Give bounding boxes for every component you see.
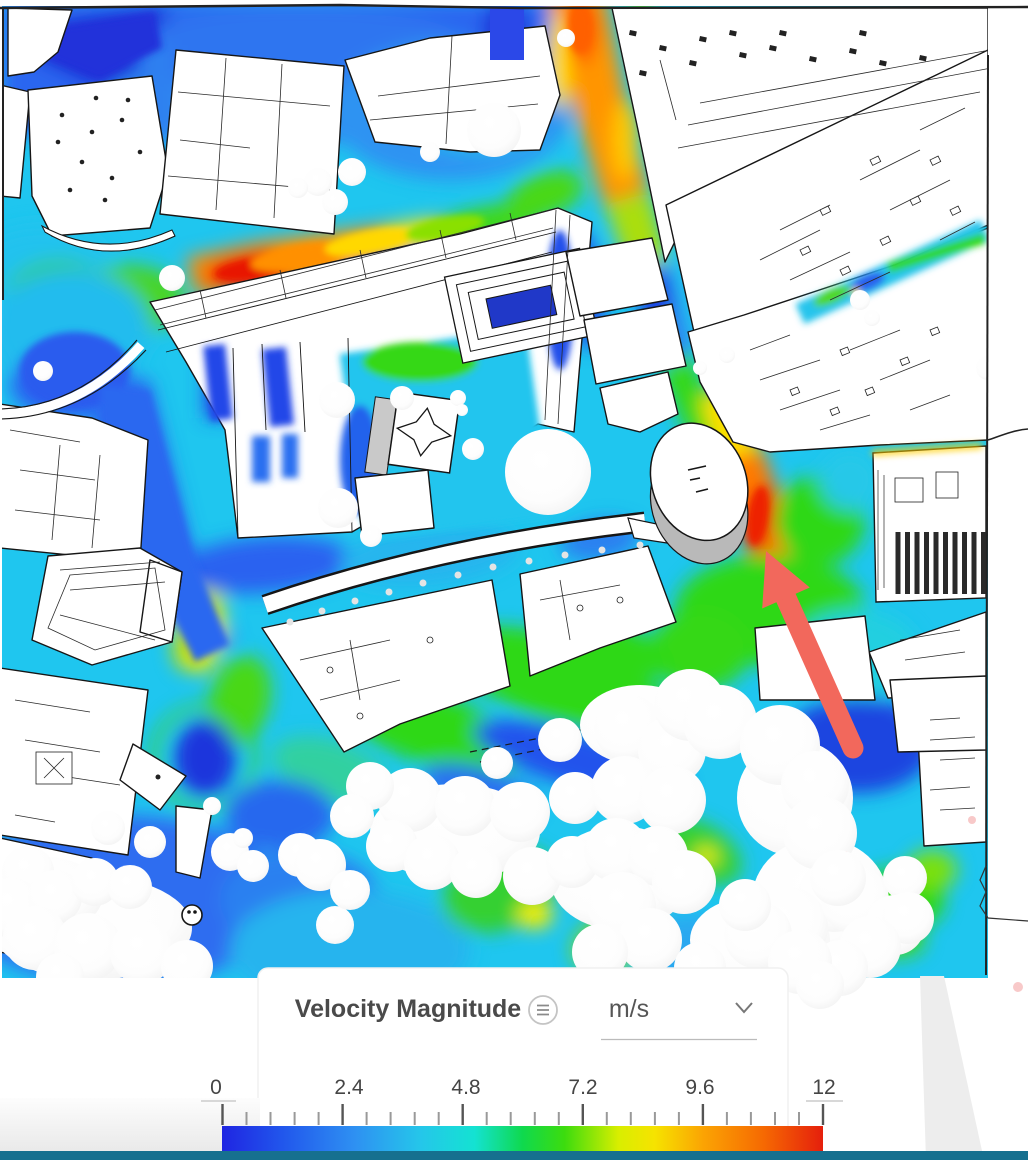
svg-text:m/s: m/s	[609, 995, 649, 1023]
svg-text:0: 0	[210, 1076, 222, 1099]
svg-text:12: 12	[812, 1076, 835, 1099]
svg-text:Velocity Magnitude: Velocity Magnitude	[295, 995, 522, 1023]
svg-text:4.8: 4.8	[451, 1076, 480, 1099]
svg-text:9.6: 9.6	[685, 1076, 714, 1099]
svg-text:7.2: 7.2	[568, 1076, 597, 1099]
svg-text:2.4: 2.4	[334, 1076, 364, 1099]
